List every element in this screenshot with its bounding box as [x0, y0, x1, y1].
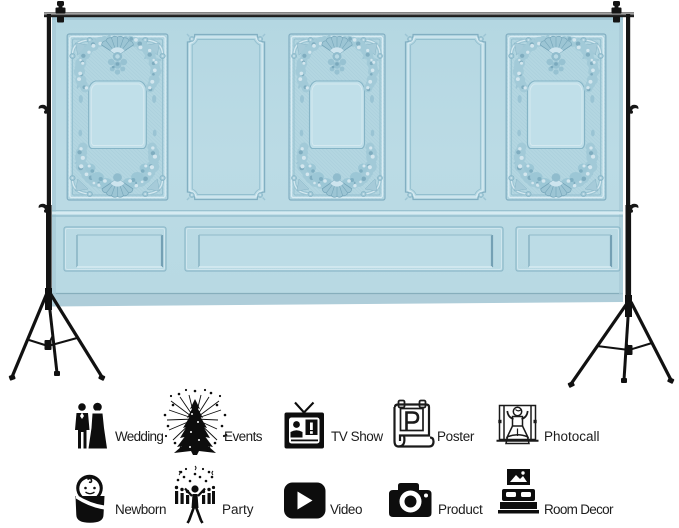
- svg-text:Photocall: Photocall: [544, 429, 600, 444]
- svg-text:Poster: Poster: [437, 429, 475, 444]
- svg-text:Newborn: Newborn: [115, 502, 166, 517]
- svg-text:Party: Party: [222, 502, 254, 517]
- svg-text:Product: Product: [438, 502, 483, 517]
- svg-text:Events: Events: [224, 429, 263, 444]
- svg-text:Video: Video: [330, 502, 362, 517]
- svg-text:Wedding: Wedding: [115, 429, 163, 444]
- svg-text:TV Show: TV Show: [331, 429, 383, 444]
- svg-text:Room Decor: Room Decor: [544, 502, 614, 517]
